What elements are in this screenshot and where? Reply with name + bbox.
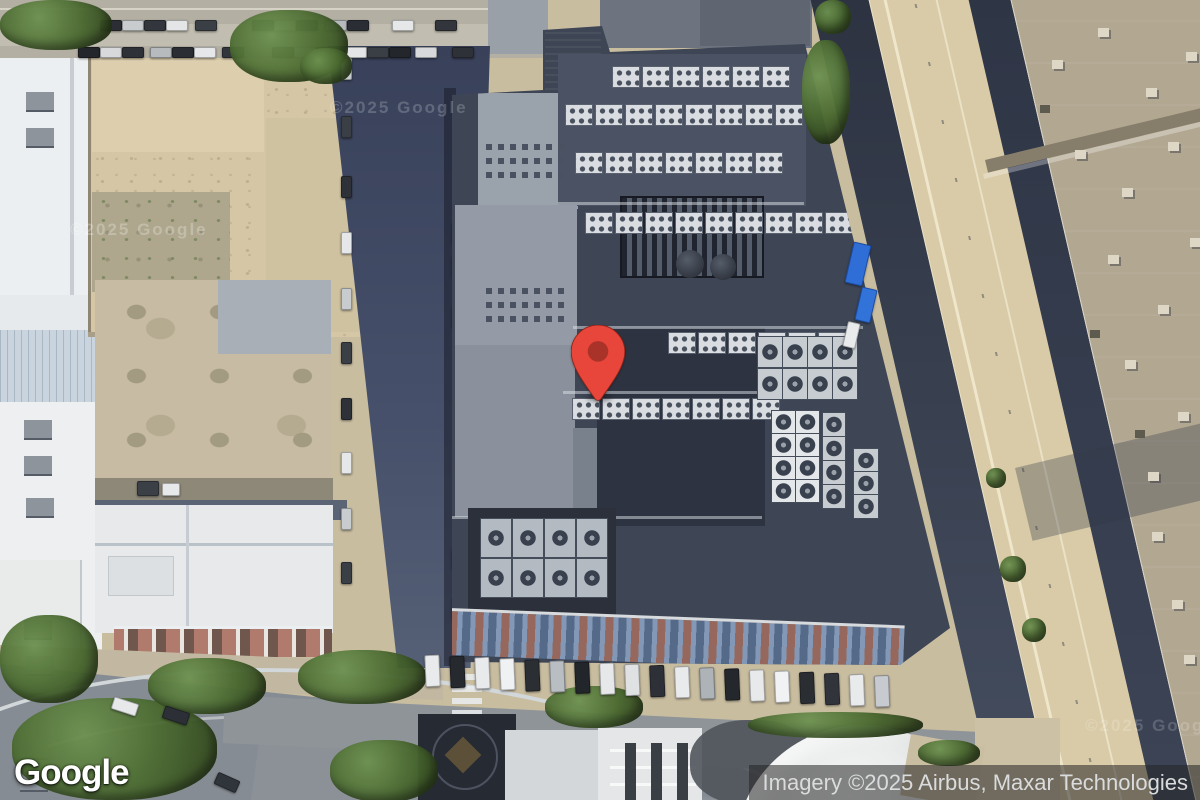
hvac-unit: [698, 332, 726, 354]
weed-patch: [92, 192, 230, 292]
tank: [710, 254, 736, 280]
roof-vent: [1108, 255, 1119, 264]
cooling-fan: [512, 558, 544, 598]
roof-vent: [1098, 28, 1109, 37]
cooling-fan: [512, 518, 544, 558]
lot-edge: [88, 55, 91, 337]
hvac-unit: [595, 104, 623, 126]
parked-car: [389, 47, 411, 58]
cooling-fan: [832, 368, 858, 400]
parked-car: [724, 668, 740, 701]
parked-car: [499, 658, 515, 691]
parked-car: [452, 47, 474, 58]
parked-car: [549, 660, 565, 693]
parked-car: [341, 452, 352, 474]
cooling-fan: [544, 518, 576, 558]
parked-car: [166, 20, 188, 31]
hvac-unit: [668, 332, 696, 354]
parked-car: [699, 667, 715, 700]
hvac-unit: [762, 66, 790, 88]
vent-strip: [486, 144, 570, 150]
hvac-unit: [685, 104, 713, 126]
hvac-unit: [565, 104, 593, 126]
rooftop-ac-unit: [24, 420, 52, 440]
hvac-unit: [675, 212, 703, 234]
hvac-unit: [795, 212, 823, 234]
parked-car: [100, 47, 122, 58]
parked-car: [392, 20, 414, 31]
tree: [815, 0, 851, 34]
cooling-fan: [771, 433, 796, 457]
roof-vent: [1135, 430, 1145, 438]
vent-strip: [486, 288, 570, 294]
cooling-fan: [757, 368, 783, 400]
cooling-fan: [480, 518, 512, 558]
roof-vent: [1152, 532, 1163, 541]
roof-vent: [1148, 472, 1159, 481]
cooling-fan: [576, 558, 608, 598]
tree: [1022, 618, 1046, 642]
roof-seam: [70, 55, 74, 295]
parked-car: [341, 398, 352, 420]
hvac-unit: [715, 104, 743, 126]
imagery-attribution: Imagery ©2025 Airbus, Maxar Technologies: [749, 765, 1200, 800]
hvac-unit: [775, 104, 803, 126]
hvac-unit: [722, 398, 750, 420]
roof-vent: [1146, 88, 1157, 97]
tank: [676, 250, 704, 278]
cooling-fan: [795, 479, 820, 503]
roof-seam: [95, 543, 333, 546]
parked-car: [367, 47, 389, 58]
hvac-unit: [575, 152, 603, 174]
parked-car: [341, 288, 352, 310]
hvac-unit: [728, 332, 756, 354]
cooling-fan: [795, 433, 820, 457]
rooftop-ac-unit: [26, 498, 54, 518]
hvac-unit: [692, 398, 720, 420]
window-grid: [610, 743, 696, 800]
location-marker[interactable]: [571, 325, 625, 401]
cooling-fan: [853, 448, 879, 473]
cooling-fan: [782, 368, 808, 400]
roof-vent: [1125, 360, 1136, 369]
hvac-unit: [825, 212, 853, 234]
roof-vent: [1186, 52, 1197, 61]
cooling-fan: [795, 456, 820, 480]
satellite-imagery[interactable]: ©2025 Google ©2025 Google ©2025 Google G…: [0, 0, 1200, 800]
roof-vent: [1190, 238, 1200, 247]
parked-car: [341, 176, 352, 198]
rooftop-paving: [455, 345, 575, 517]
parked-car: [874, 675, 890, 708]
building-roof: [0, 330, 95, 402]
hvac-unit: [755, 152, 783, 174]
cooling-fan: [822, 484, 846, 509]
hvac-unit: [632, 398, 660, 420]
parked-car: [347, 20, 369, 31]
loading-dock: [95, 478, 333, 500]
parked-car: [415, 47, 437, 58]
hvac-unit: [725, 152, 753, 174]
hvac-unit: [702, 66, 730, 88]
roof-vent: [1122, 188, 1133, 197]
parked-car: [599, 663, 615, 696]
roof-seam: [558, 202, 804, 205]
parked-car: [849, 674, 865, 707]
parked-car: [144, 20, 166, 31]
hvac-unit: [735, 212, 763, 234]
parked-car: [194, 47, 216, 58]
cooling-fan: [782, 336, 808, 368]
cooling-fan: [771, 410, 796, 434]
building-roof: [488, 0, 548, 54]
roof-vent: [1184, 655, 1195, 664]
roof-vent: [1178, 412, 1189, 421]
parked-car: [122, 47, 144, 58]
vent-strip: [486, 158, 570, 164]
hvac-unit: [655, 104, 683, 126]
tree: [802, 40, 850, 144]
parked-car: [172, 47, 194, 58]
hvac-unit: [585, 212, 613, 234]
roof-vent: [1040, 105, 1050, 113]
parked-car: [341, 508, 352, 530]
tree: [0, 615, 98, 703]
cooling-fan: [771, 479, 796, 503]
cooling-fan: [822, 436, 846, 461]
cooling-fan: [822, 412, 846, 437]
roof-vent: [1090, 330, 1100, 338]
parked-car: [122, 20, 144, 31]
cooling-fan: [853, 494, 879, 519]
building-roof: [505, 730, 601, 800]
truck: [137, 481, 159, 496]
hvac-unit: [605, 152, 633, 174]
parked-car: [424, 655, 440, 688]
parked-car: [341, 342, 352, 364]
tree: [1000, 556, 1026, 582]
vent-strip: [486, 302, 570, 308]
roof-vent: [1168, 142, 1179, 151]
lot-patch: [92, 60, 264, 152]
parked-car: [78, 47, 100, 58]
parked-car: [474, 657, 490, 690]
rooftop-ac-unit: [26, 92, 54, 112]
hvac-unit: [642, 66, 670, 88]
parked-car: [624, 664, 640, 697]
cooling-fan: [576, 518, 608, 558]
parked-car: [799, 672, 815, 705]
parked-car: [341, 116, 352, 138]
parked-car: [150, 47, 172, 58]
parked-car: [449, 656, 465, 689]
hvac-unit: [635, 152, 663, 174]
tree: [918, 740, 980, 766]
parked-car: [341, 562, 352, 584]
hvac-unit: [662, 398, 690, 420]
building-roof: [0, 50, 100, 295]
parked-car: [674, 666, 690, 699]
tree: [300, 48, 352, 84]
hvac-unit: [732, 66, 760, 88]
hvac-unit: [625, 104, 653, 126]
vent-strip: [486, 316, 570, 322]
hvac-unit: [612, 66, 640, 88]
building-roof: [218, 280, 331, 354]
google-logo[interactable]: Google: [14, 755, 129, 790]
parked-car: [341, 232, 352, 254]
tree: [986, 468, 1006, 488]
parked-car: [524, 659, 540, 692]
vent-strip: [486, 172, 570, 178]
hvac-unit: [745, 104, 773, 126]
hvac-unit: [765, 212, 793, 234]
parked-car: [749, 669, 765, 702]
hvac-unit: [705, 212, 733, 234]
map-viewport: ©2025 Google ©2025 Google ©2025 Google G…: [0, 0, 1200, 800]
cooling-fan: [795, 410, 820, 434]
cooling-fan: [822, 460, 846, 485]
hvac-unit: [615, 212, 643, 234]
parked-car: [574, 661, 590, 694]
parked-car: [435, 20, 457, 31]
roof-seam: [186, 505, 189, 633]
roof-vent: [1172, 600, 1183, 609]
cooling-fan: [757, 336, 783, 368]
tree: [330, 740, 438, 800]
hvac-unit: [602, 398, 630, 420]
cooling-fan: [771, 456, 796, 480]
cooling-fan: [853, 471, 879, 496]
tree: [0, 0, 112, 50]
roof-vent: [1075, 150, 1086, 159]
parked-car: [649, 665, 665, 698]
cooling-fan: [544, 558, 576, 598]
parked-car: [774, 670, 790, 703]
cooling-fan: [807, 368, 833, 400]
parked-car: [824, 673, 840, 706]
hvac-unit: [665, 152, 693, 174]
roof-vent: [1158, 305, 1169, 314]
street: [700, 0, 810, 46]
rooftop-paving: [455, 205, 577, 347]
roof-vent: [1052, 60, 1063, 69]
hvac-unit: [645, 212, 673, 234]
rooftop-unit: [108, 556, 174, 596]
rooftop-ac-unit: [24, 456, 52, 476]
tree: [298, 650, 426, 704]
cooling-fan: [480, 558, 512, 598]
rooftop-ac-unit: [26, 128, 54, 148]
hvac-unit: [672, 66, 700, 88]
attribution-text: Imagery ©2025 Airbus, Maxar Technologies: [763, 770, 1188, 795]
cooling-fan: [807, 336, 833, 368]
truck: [162, 483, 180, 496]
hvac-unit: [695, 152, 723, 174]
parked-car: [195, 20, 217, 31]
